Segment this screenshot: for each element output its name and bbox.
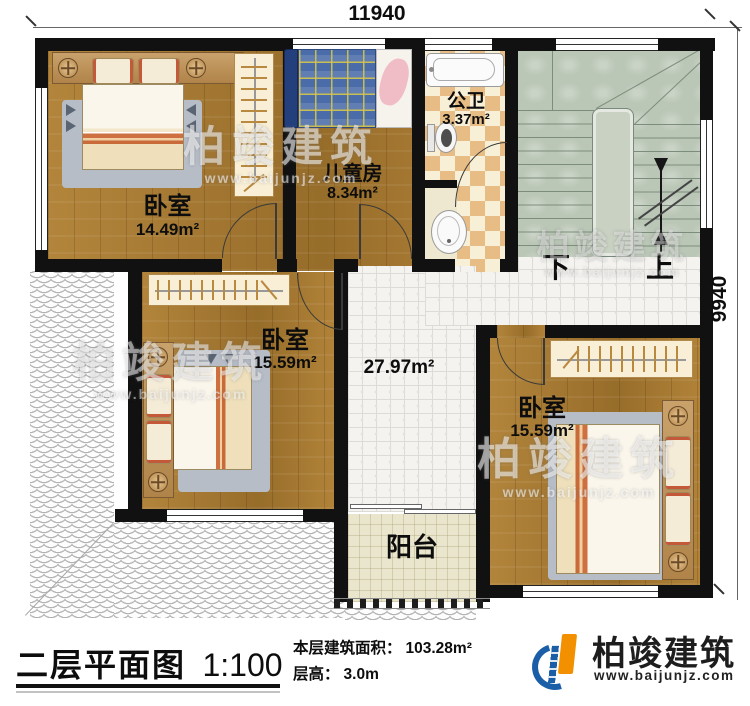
rug-chevron-icon — [205, 354, 217, 364]
floor-bedroom-3-door-gap — [497, 325, 545, 338]
dimension-label-width: 11940 — [330, 2, 424, 26]
bedpost-knob-icon — [148, 472, 168, 492]
roof-bottom — [114, 522, 345, 618]
toilet-seat — [441, 129, 452, 147]
label-bedroom-2-name: 卧室 — [243, 328, 327, 353]
label-balcony-name: 阳台 — [366, 534, 458, 561]
label-bathroom-area: 3.37m² — [431, 112, 501, 128]
wall-bedroom2-south-1 — [115, 509, 167, 522]
bedpost-knob-icon — [58, 58, 78, 78]
wall-east-top — [700, 38, 713, 120]
stairs-left-flight — [518, 110, 594, 257]
rug-chevron-icon — [66, 120, 76, 132]
stairs-landing-line — [552, 51, 553, 110]
bedroom-2-pillow — [146, 374, 172, 418]
door-leaf-bedroom-2 — [341, 273, 343, 330]
wardrobe-hangers — [577, 346, 684, 372]
window-south-bedroom-3 — [523, 585, 658, 598]
toilet-tank — [427, 124, 435, 152]
floor-area-line: 本层建筑面积：103.28m² — [293, 636, 472, 658]
window-west-bedroom-1 — [35, 88, 48, 250]
bedroom-3-pillow — [665, 436, 691, 490]
rug-chevron-icon — [186, 104, 196, 116]
floor-area-label: 本层建筑面积： — [293, 640, 402, 657]
bathtub-drain — [429, 67, 434, 72]
wall-bedroom3-west — [476, 325, 490, 602]
wall-kids-bath — [412, 51, 425, 259]
floor-area-value: 103.28m² — [406, 640, 472, 657]
dimension-line-top — [33, 27, 742, 28]
bedpost-knob-icon — [186, 58, 206, 78]
wardrobe-hangers — [241, 60, 267, 178]
bedroom-2-wardrobe — [148, 274, 290, 306]
plan-title-text: 二层平面图 — [16, 647, 186, 683]
floor-hall-tile-mid — [425, 272, 518, 326]
stairs-arrowhead-bottom — [654, 230, 668, 245]
dimension-tick — [25, 15, 36, 26]
label-hall-area: 27.97m² — [343, 358, 455, 378]
balcony-railing — [334, 598, 490, 609]
bedroom-3-pillow — [665, 492, 691, 546]
door-leaf-bedroom-1 — [275, 203, 277, 259]
dimension-label-height: 9940 — [708, 267, 732, 331]
bedpost-knob-icon — [668, 406, 688, 426]
plan-title: 二层平面图 1:100 — [16, 640, 283, 686]
window-north-bath — [425, 38, 492, 51]
door-leaf-bedroom-3 — [543, 338, 545, 385]
bedroom-2-mattress — [172, 366, 252, 470]
label-stairs-up: 上 — [640, 253, 680, 282]
wall-bedroom3-south-1 — [476, 585, 523, 598]
window-east-stairs — [700, 120, 713, 228]
floor-plan-canvas: 卧室 14.49m² 儿童房 8.34m² 公卫 3.37m² 卧室 15.59… — [0, 0, 750, 706]
floor-height-label: 层高： — [293, 666, 340, 683]
wardrobe-hangers — [157, 280, 265, 300]
stairs-center-well — [592, 108, 634, 257]
title-underline-thin — [16, 691, 280, 693]
wall-north-1 — [35, 38, 293, 51]
label-bedroom-2-area: 15.59m² — [235, 354, 335, 372]
wall-mid-2 — [277, 259, 297, 272]
rug-chevron-icon — [66, 104, 76, 116]
kids-bed-plaid-blanket — [298, 49, 376, 128]
label-bedroom-1-area: 14.49m² — [110, 221, 225, 239]
label-bedroom-1-name: 卧室 — [110, 194, 225, 219]
bedroom-3-wardrobe — [550, 340, 693, 378]
dimension-tick — [704, 8, 715, 19]
bedroom-1-wardrobe — [234, 53, 274, 197]
kids-bed-headboard — [284, 49, 298, 128]
kids-bed-sheet — [376, 49, 412, 128]
bedroom-1-pillow — [92, 58, 134, 84]
bedpost-knob-icon — [668, 552, 688, 572]
window-north-stairs — [556, 38, 658, 51]
rug-chevron-icon — [186, 120, 196, 132]
roof-below-balcony — [345, 608, 476, 620]
label-bedroom-3-name: 卧室 — [500, 396, 584, 421]
dimension-tick — [729, 20, 740, 31]
bedroom-1-pillow — [138, 58, 180, 84]
brand-logo-icon — [536, 632, 586, 694]
kids-bed-pillow — [376, 56, 413, 109]
stairs-arrowhead-top — [654, 158, 668, 173]
label-kids-room-area: 8.34m² — [305, 186, 400, 203]
title-underline-thick — [16, 684, 280, 688]
bathtub — [426, 53, 504, 87]
bedroom-1-mattress — [82, 84, 184, 170]
rug-chevron-icon — [222, 354, 234, 364]
brand-logo: 柏竣建筑 www.baijunjz.com — [508, 626, 746, 702]
floor-height-value: 3.0m — [344, 666, 379, 683]
label-bedroom-3-area: 15.59m² — [492, 422, 592, 440]
bedroom-3-mattress — [556, 424, 660, 574]
door-leaf-kids-room — [359, 204, 361, 259]
window-south-bedroom-2 — [167, 509, 303, 522]
dimension-line-right — [737, 27, 738, 600]
label-kids-room-name: 儿童房 — [305, 164, 400, 185]
wall-bedroom2-west — [128, 259, 142, 522]
wall-bedroom3-north-2 — [545, 325, 713, 338]
wall-bedroom2-south-2 — [303, 509, 348, 522]
bedroom-2-pillow — [146, 420, 172, 464]
wall-west-top — [35, 38, 48, 88]
label-bathroom-name: 公卫 — [434, 92, 498, 112]
bathroom-partition-wall — [425, 180, 457, 188]
wall-bedroom3-south-2 — [658, 585, 713, 598]
label-stairs-down: 下 — [536, 253, 576, 282]
floor-height-line: 层高：3.0m — [293, 662, 379, 684]
sink-drain — [447, 239, 451, 243]
wall-mid-5 — [500, 259, 518, 272]
wall-mid-4 — [412, 259, 455, 272]
bedpost-knob-icon — [148, 347, 168, 367]
sink — [431, 210, 467, 254]
wall-north-3 — [492, 38, 556, 51]
dimension-tick — [713, 583, 724, 594]
plan-scale-text: 1:100 — [202, 647, 282, 683]
brand-website: www.baijunjz.com — [594, 668, 735, 683]
balcony-sliding-door-panel-2 — [404, 509, 476, 514]
bathtub-basin — [433, 58, 495, 81]
